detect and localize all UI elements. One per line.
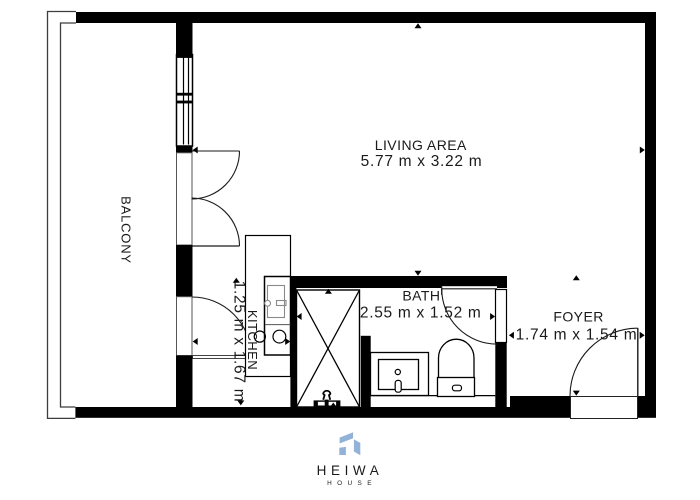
svg-text:1.25 m x 1.67 m: 1.25 m x 1.67 m xyxy=(230,281,247,403)
svg-text:BATH: BATH xyxy=(402,288,440,304)
svg-text:1.74 m x 1.54 m: 1.74 m x 1.54 m xyxy=(516,327,638,344)
svg-text:2.55 m x 1.52 m: 2.55 m x 1.52 m xyxy=(360,305,482,322)
svg-text:FOYER: FOYER xyxy=(553,309,603,325)
svg-text:LIVING AREA: LIVING AREA xyxy=(375,137,467,153)
svg-text:HEIWA: HEIWA xyxy=(317,463,384,478)
svg-text:5.77 m x 3.22 m: 5.77 m x 3.22 m xyxy=(361,153,483,170)
svg-text:BALCONY: BALCONY xyxy=(119,196,134,264)
svg-text:HOUSE: HOUSE xyxy=(327,480,377,487)
